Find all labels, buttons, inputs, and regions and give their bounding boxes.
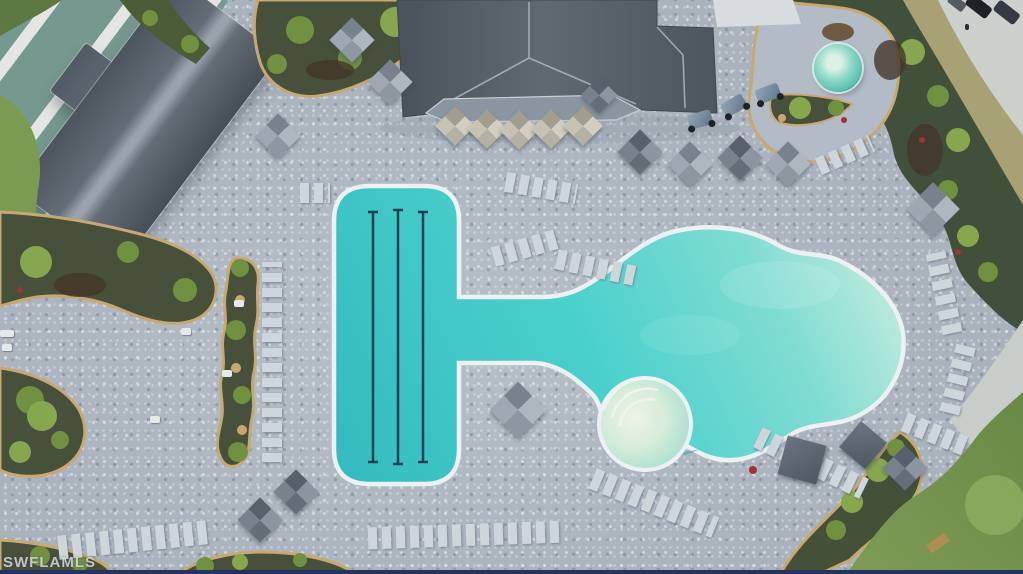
lounge-chair-column [262,262,282,462]
side-table [222,370,232,377]
lounge-chair-row [300,183,330,203]
side-table [150,416,160,423]
pedestrian [965,24,969,30]
side-table [0,330,14,337]
side-table [234,300,244,307]
mls-watermark: SWFLAMLS [3,554,96,571]
landscape-rock [822,23,854,41]
putting-green [965,475,1023,535]
spa-hot-tub [814,44,862,92]
pool-aerial-photo: SWFLAMLS [0,0,1023,574]
beach-entry [599,378,691,470]
pool-complex [334,186,904,484]
side-table [2,344,12,351]
landscape-and-pools-layer [0,0,1023,574]
photo-frame-bar [0,570,1023,574]
hedge-top-center-left [120,0,210,64]
side-table [181,328,191,335]
